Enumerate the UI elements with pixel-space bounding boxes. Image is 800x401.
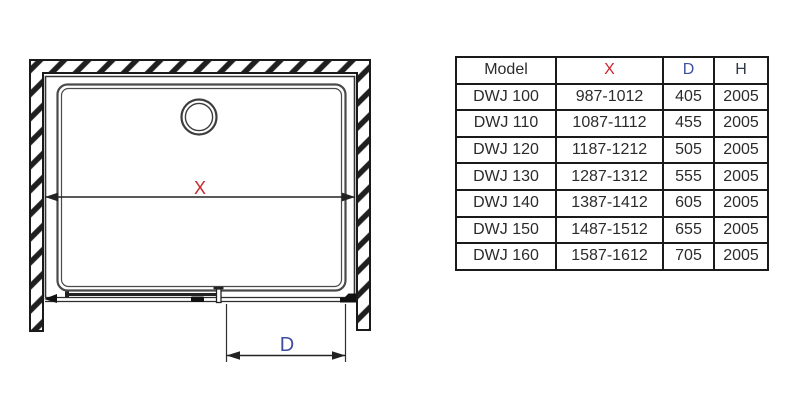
table-row: DWJ 120 1187-1212 505 2005 (456, 137, 768, 164)
header-model: Model (456, 57, 556, 84)
cell-model: DWJ 140 (456, 190, 556, 217)
header-h: H (714, 57, 768, 84)
spec-table: Model X D H DWJ 100 987-1012 405 2005 DW… (455, 56, 769, 271)
drain-circle (182, 100, 217, 135)
cell-d: 555 (663, 163, 714, 190)
table-row: DWJ 110 1087-1112 455 2005 (456, 110, 768, 137)
cell-h: 2005 (714, 110, 768, 137)
spec-table-header-row: Model X D H (456, 57, 768, 84)
cell-h: 2005 (714, 84, 768, 111)
wall-bracket-right (340, 294, 356, 303)
cell-model: DWJ 110 (456, 110, 556, 137)
page: X D (0, 0, 800, 401)
cell-x: 1487-1512 (556, 217, 663, 244)
header-d: D (663, 57, 714, 84)
cell-model: DWJ 130 (456, 163, 556, 190)
header-x: X (556, 57, 663, 84)
cell-x: 987-1012 (556, 84, 663, 111)
cell-model: DWJ 160 (456, 243, 556, 270)
cell-model: DWJ 150 (456, 217, 556, 244)
cell-h: 2005 (714, 243, 768, 270)
cell-d: 455 (663, 110, 714, 137)
technical-drawing: X D (0, 0, 440, 401)
table-row: DWJ 160 1587-1612 705 2005 (456, 243, 768, 270)
cell-model: DWJ 100 (456, 84, 556, 111)
cell-d: 655 (663, 217, 714, 244)
x-arrowhead-right (342, 193, 355, 202)
table-row: DWJ 150 1487-1512 655 2005 (456, 217, 768, 244)
cell-d: 605 (663, 190, 714, 217)
door-handle (191, 297, 204, 303)
cell-x: 1287-1312 (556, 163, 663, 190)
cell-h: 2005 (714, 137, 768, 164)
table-row: DWJ 100 987-1012 405 2005 (456, 84, 768, 111)
cell-d: 405 (663, 84, 714, 111)
cell-model: DWJ 120 (456, 137, 556, 164)
d-arrowhead-right (332, 351, 346, 360)
cell-d: 705 (663, 243, 714, 270)
d-dimension-label: D (280, 334, 294, 356)
x-arrowhead-left (45, 193, 58, 202)
cell-d: 505 (663, 137, 714, 164)
d-arrowhead-left (227, 351, 241, 360)
cell-x: 1087-1112 (556, 110, 663, 137)
d-dimension: D (227, 304, 346, 362)
sliding-door-panel (65, 292, 221, 298)
cell-h: 2005 (714, 217, 768, 244)
table-row: DWJ 130 1287-1312 555 2005 (456, 163, 768, 190)
cell-h: 2005 (714, 163, 768, 190)
cell-x: 1187-1212 (556, 137, 663, 164)
x-dimension-label: X (194, 178, 206, 198)
table-row: DWJ 140 1387-1412 605 2005 (456, 190, 768, 217)
cell-x: 1387-1412 (556, 190, 663, 217)
cell-x: 1587-1612 (556, 243, 663, 270)
cell-h: 2005 (714, 190, 768, 217)
